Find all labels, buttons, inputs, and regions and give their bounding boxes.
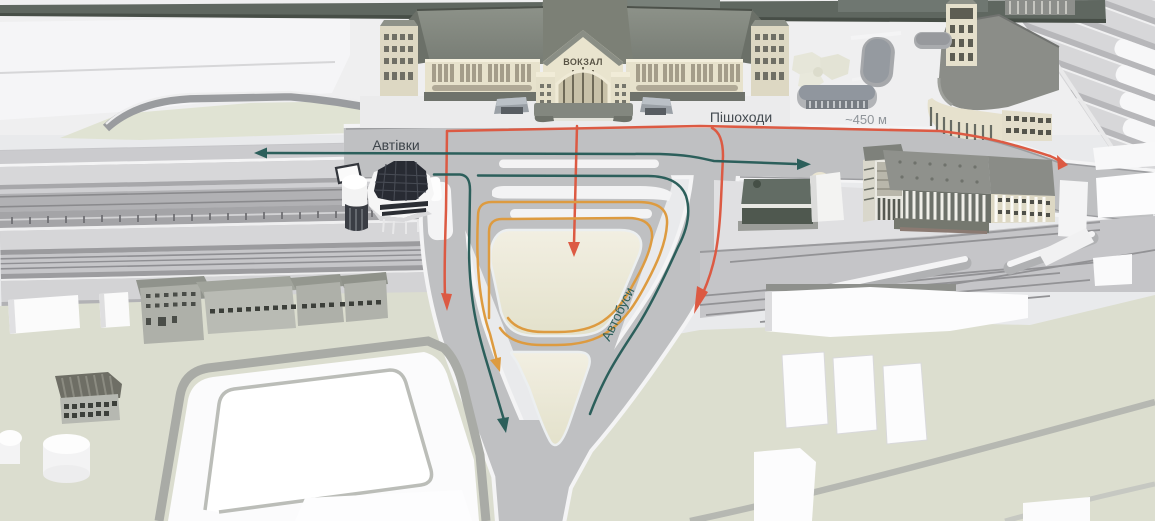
svg-text:~450 м: ~450 м: [845, 112, 887, 127]
svg-text:Автівки: Автівки: [372, 137, 419, 153]
svg-text:ВОКЗАЛ: ВОКЗАЛ: [563, 57, 602, 67]
svg-text:Пішоходи: Пішоходи: [710, 109, 772, 125]
